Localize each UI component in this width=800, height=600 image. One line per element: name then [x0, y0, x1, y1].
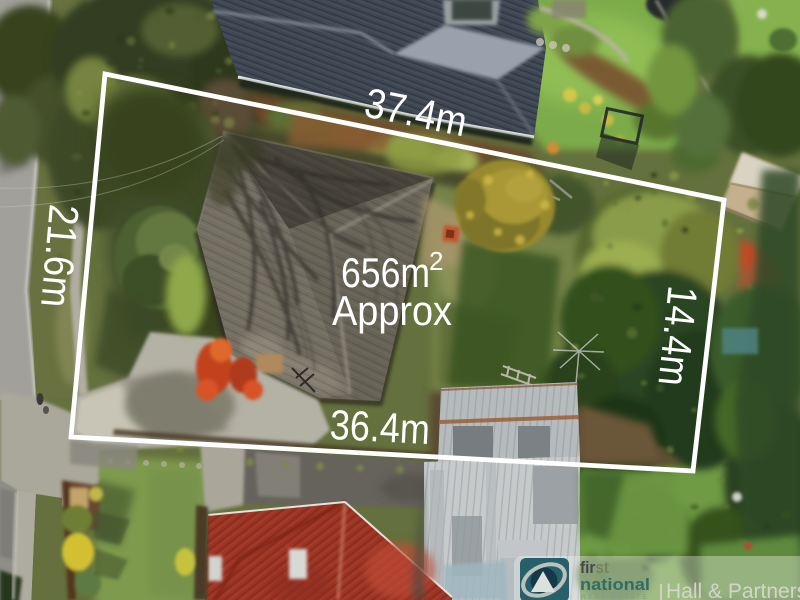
svg-text:2: 2 [429, 246, 443, 276]
svg-text:REAL ESTATE: REAL ESTATE [581, 594, 649, 600]
svg-text:36.4m: 36.4m [329, 401, 431, 453]
svg-text:Approx: Approx [332, 287, 452, 334]
svg-text:national: national [580, 575, 650, 594]
svg-text:Hall & Partners: Hall & Partners [666, 580, 800, 600]
svg-text:21.6m: 21.6m [32, 203, 88, 310]
